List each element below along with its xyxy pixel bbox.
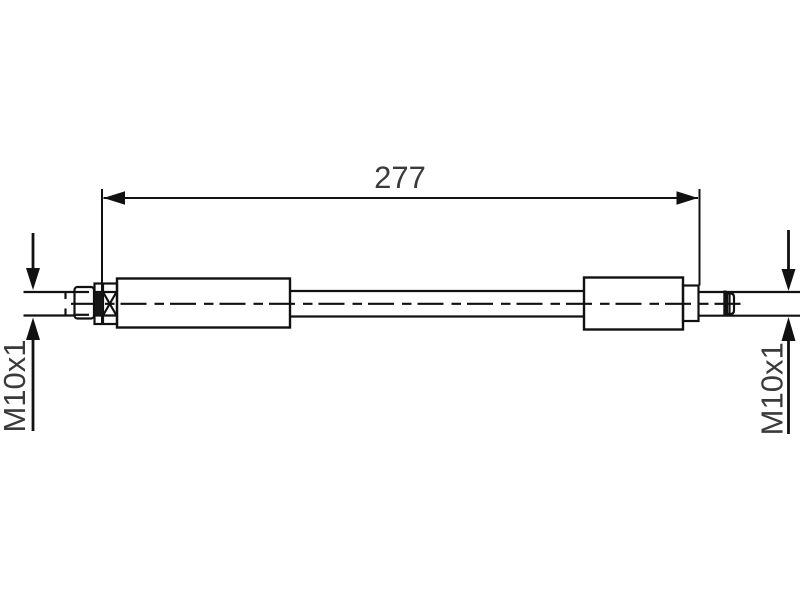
svg-text:M10x1: M10x1 bbox=[755, 342, 790, 435]
svg-text:277: 277 bbox=[374, 160, 426, 195]
svg-text:M10x1: M10x1 bbox=[0, 339, 32, 432]
